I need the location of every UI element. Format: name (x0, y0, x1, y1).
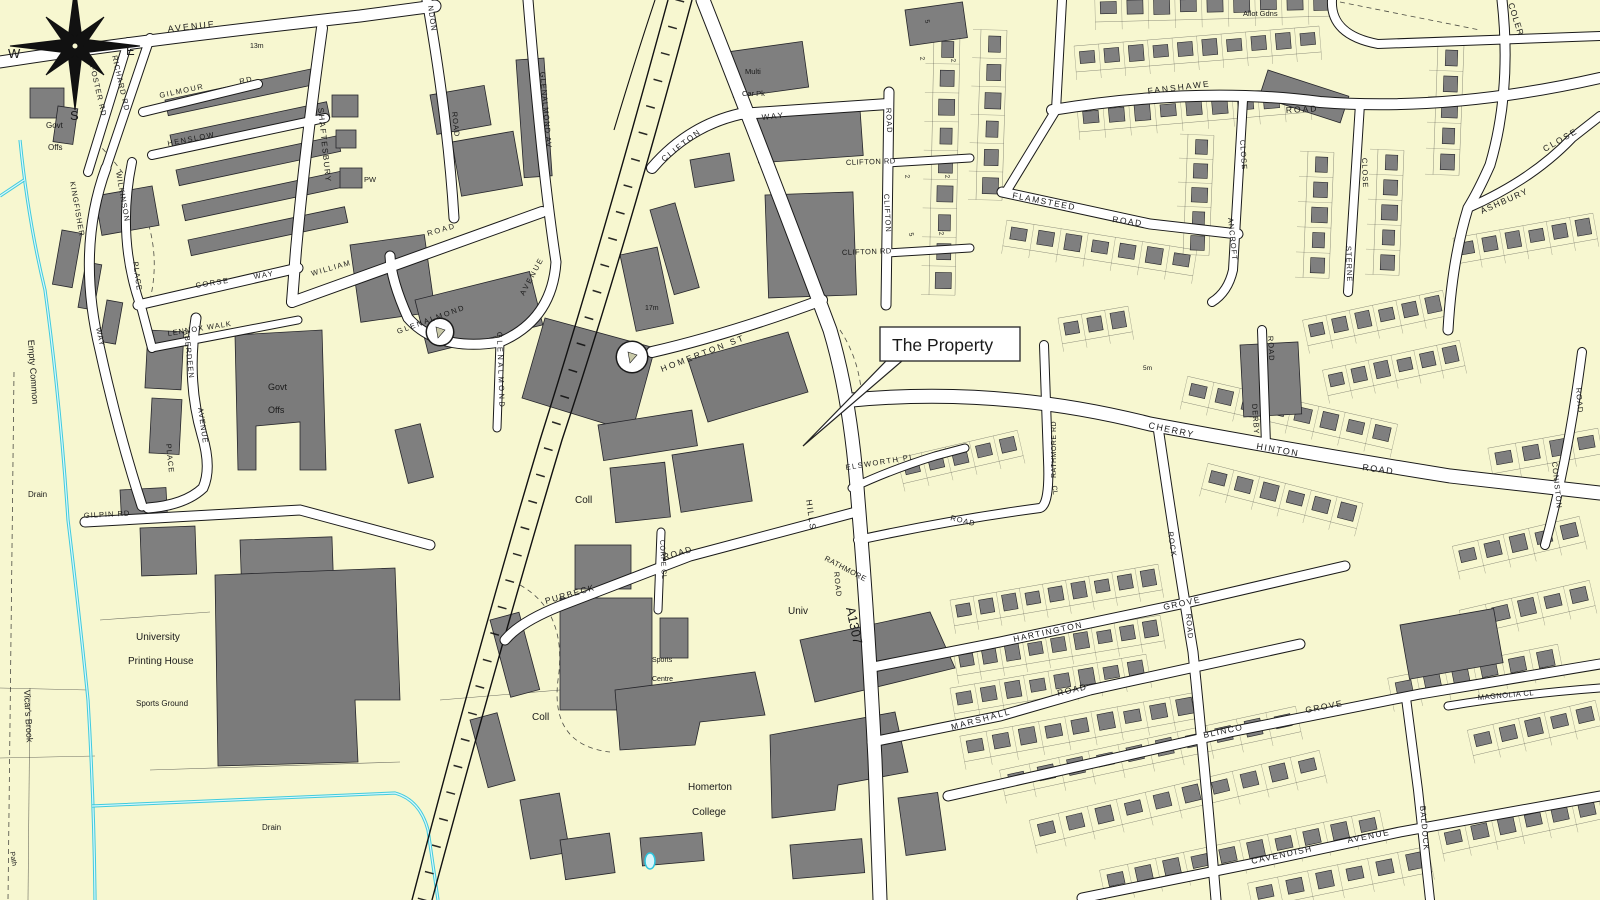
terrace-house (1385, 155, 1398, 170)
map-label-drain: Drain (28, 490, 47, 499)
map-label-17m: 17m (645, 305, 659, 312)
terrace-house (1303, 828, 1322, 845)
building (660, 618, 688, 658)
terrace-house (1207, 0, 1223, 12)
terrace-house (956, 603, 972, 617)
terrace-house (1374, 360, 1391, 379)
road (887, 158, 970, 163)
terrace-house (1508, 656, 1526, 673)
terrace-house (1378, 307, 1395, 322)
terrace-house (1145, 246, 1163, 264)
terrace-house (1048, 586, 1064, 602)
building (452, 131, 523, 196)
terrace-house (940, 128, 952, 144)
map-label-road: ROAD (1266, 336, 1276, 362)
terrace-house (1097, 630, 1113, 644)
terrace-house (1025, 591, 1041, 605)
compass-south-label: S (70, 108, 79, 123)
terrace-house (1073, 632, 1089, 650)
terrace-house (1029, 678, 1046, 692)
terrace-house (1190, 236, 1205, 251)
terrace-house (942, 41, 954, 57)
terrace-house (1104, 47, 1120, 62)
terrace-house (1037, 230, 1055, 246)
map-label-printing-house: Printing House (128, 656, 194, 667)
map-label-clifton-rd: CLIFTON RD (846, 156, 896, 167)
terrace-house (1050, 636, 1066, 652)
terrace-house (1522, 444, 1540, 461)
terrace-house (1193, 164, 1208, 179)
pond (645, 853, 655, 869)
terrace-house (1442, 128, 1455, 144)
terrace-house (1517, 597, 1536, 616)
map-label-car-pk: Car Pk (742, 89, 765, 98)
terrace-house (1103, 665, 1120, 679)
terrace-house (1495, 450, 1513, 465)
terrace-house (938, 99, 954, 115)
terrace-house (1064, 234, 1082, 252)
terrace-house (980, 685, 997, 701)
terrace-house (1182, 784, 1201, 803)
map-label-coll: Coll (532, 712, 549, 723)
building (672, 444, 752, 513)
terrace-house (1153, 44, 1169, 57)
terrace-house (966, 738, 984, 753)
terrace-house (1127, 0, 1143, 14)
map-label-govt: Govt (46, 121, 64, 130)
terrace-house (938, 215, 950, 231)
map-label-offs: Offs (268, 405, 285, 415)
building (336, 130, 356, 148)
terrace-house (1286, 877, 1304, 894)
terrace-house (1351, 366, 1368, 383)
building (898, 792, 946, 855)
terrace-house (1524, 717, 1543, 736)
terrace-house (1419, 351, 1436, 368)
terrace-house (1134, 104, 1151, 121)
terrace-house (1177, 41, 1193, 56)
map-label-multi: Multi (745, 67, 761, 76)
map-label-13m: 13m (250, 43, 264, 50)
map-canvas[interactable]: W E S AVENUE13mFOSTER RDRICHARD RDGILMOU… (0, 0, 1600, 900)
map-label-road: ROAD (884, 108, 894, 134)
terrace-house (1087, 316, 1103, 332)
terrace-house (987, 64, 1001, 80)
terrace-house (979, 598, 995, 614)
map-label-coll: Coll (575, 495, 592, 506)
terrace-house (1287, 0, 1303, 10)
terrace-house (1332, 316, 1349, 333)
terrace-house (1091, 240, 1109, 254)
building (790, 839, 865, 879)
terrace-house (1440, 154, 1455, 170)
building (610, 462, 670, 522)
terrace-house (1195, 140, 1208, 155)
terrace-house (1269, 763, 1288, 782)
terrace-house (1095, 805, 1114, 824)
terrace-house (1509, 533, 1528, 552)
terrace-house (1153, 0, 1169, 15)
terrace-house (1079, 50, 1095, 63)
terrace-house (1186, 100, 1203, 115)
terrace-house (935, 272, 951, 288)
terrace-house (984, 149, 998, 165)
terrace-house (1128, 44, 1144, 61)
terrace-house (1402, 301, 1419, 318)
terrace-house (1320, 411, 1339, 430)
terrace-house (1529, 228, 1545, 242)
terrace-house (1315, 157, 1328, 173)
map-label-road: ROAD (1286, 103, 1319, 115)
terrace-house (1376, 859, 1394, 876)
map-label-clifton-rd: CLIFTON RD (842, 246, 892, 257)
terrace-house (985, 93, 1001, 109)
building (140, 526, 197, 576)
terrace-house (1119, 625, 1135, 641)
building (332, 95, 358, 117)
building (340, 168, 362, 188)
terrace-house (1160, 104, 1176, 117)
map-label-allot-gdns: Allot Gdns (1243, 9, 1278, 18)
terrace-house (1311, 207, 1328, 223)
map-label-offs: Offs (48, 143, 63, 152)
map-label-college: College (692, 807, 726, 818)
map-label-sports-ground: Sports Ground (136, 699, 188, 708)
terrace-house (986, 121, 998, 137)
terrace-house (1142, 620, 1158, 638)
terrace-house (1397, 357, 1413, 372)
map-label-homerton: Homerton (688, 782, 732, 793)
map-label-close: CLOSE (1360, 158, 1370, 189)
terrace-house (1382, 230, 1395, 245)
map-label-pw: PW (364, 175, 377, 184)
terrace-house (1083, 110, 1099, 123)
terrace-house (1202, 38, 1218, 55)
terrace-house (1536, 649, 1555, 668)
map-label-5m: 5m (1143, 365, 1152, 372)
terrace-house (1118, 243, 1136, 259)
terrace-house (1064, 321, 1080, 335)
terrace-house (1071, 718, 1089, 735)
terrace-house (1482, 236, 1498, 252)
terrace-house (1505, 230, 1522, 248)
terrace-house (937, 186, 953, 202)
terrace-house (1097, 712, 1116, 731)
terrace-house (1312, 232, 1325, 248)
terrace-house (1425, 295, 1442, 314)
terrace-house (1308, 322, 1325, 337)
terrace-house (1176, 697, 1195, 716)
compass-hub (72, 43, 78, 49)
terrace-house (1123, 709, 1141, 724)
terrace-house (1001, 593, 1018, 611)
terrace-house (956, 691, 973, 705)
map-label-rathmore-rd: RATHMORE RD (1051, 421, 1058, 478)
map-label-govt: Govt (268, 382, 288, 392)
property-callout-text: The Property (892, 335, 993, 355)
terrace-house (992, 732, 1010, 749)
terrace-house (1552, 223, 1568, 239)
terrace-house (1100, 1, 1116, 13)
terrace-house (1575, 218, 1592, 236)
terrace-house (1071, 581, 1088, 599)
terrace-house (1275, 32, 1291, 49)
map-label-univ: Univ (788, 606, 808, 617)
terrace-house (1028, 641, 1044, 655)
map-label-university: University (136, 632, 180, 643)
road (887, 248, 970, 253)
terrace-house (1383, 180, 1398, 196)
terrace-house (1180, 0, 1196, 12)
terrace-house (1191, 187, 1208, 202)
compass-east-label: E (126, 43, 135, 58)
terrace-house (1173, 253, 1191, 267)
terrace-house (1094, 579, 1110, 593)
map-label-sterne: STERNE (1344, 246, 1354, 283)
terrace-house (1328, 372, 1344, 387)
terrace-house (1443, 76, 1458, 92)
building (905, 2, 967, 46)
terrace-house (1577, 435, 1595, 450)
terrace-house (1010, 227, 1028, 241)
terrace-house (1310, 258, 1325, 274)
terrace-house (1251, 35, 1267, 50)
terrace-house (982, 178, 998, 194)
road (1262, 330, 1266, 445)
terrace-house (999, 436, 1017, 453)
terrace-house (1045, 724, 1063, 739)
terrace-house (1471, 823, 1490, 840)
building (560, 833, 615, 880)
map-label-centre: Centre (652, 676, 673, 683)
terrace-house (1300, 32, 1316, 45)
terrace-house (1316, 870, 1335, 889)
terrace-house (1226, 38, 1242, 51)
terrace-house (1108, 107, 1125, 122)
terrace-house (1150, 703, 1168, 720)
terrace-house (1380, 255, 1395, 271)
terrace-house (1117, 574, 1133, 590)
terrace-house (1005, 680, 1022, 698)
terrace-house (988, 36, 1000, 52)
terrace-house (1018, 726, 1037, 745)
terrace-house (1445, 50, 1458, 66)
map-label-sports: Sports (652, 657, 673, 664)
terrace-house (1110, 311, 1127, 329)
terrace-house (1442, 345, 1459, 364)
terrace-house (1381, 205, 1398, 221)
terrace-house (1355, 310, 1372, 329)
compass-west-label: W (8, 46, 21, 61)
terrace-house (940, 70, 954, 86)
terrace-house (1313, 182, 1328, 198)
map-label-drain: Drain (262, 823, 281, 832)
terrace-house (1140, 569, 1157, 587)
terrace-house (1219, 846, 1238, 863)
map-viewport[interactable]: W E S AVENUE13mFOSTER RDRICHARD RDGILMOU… (0, 0, 1600, 900)
